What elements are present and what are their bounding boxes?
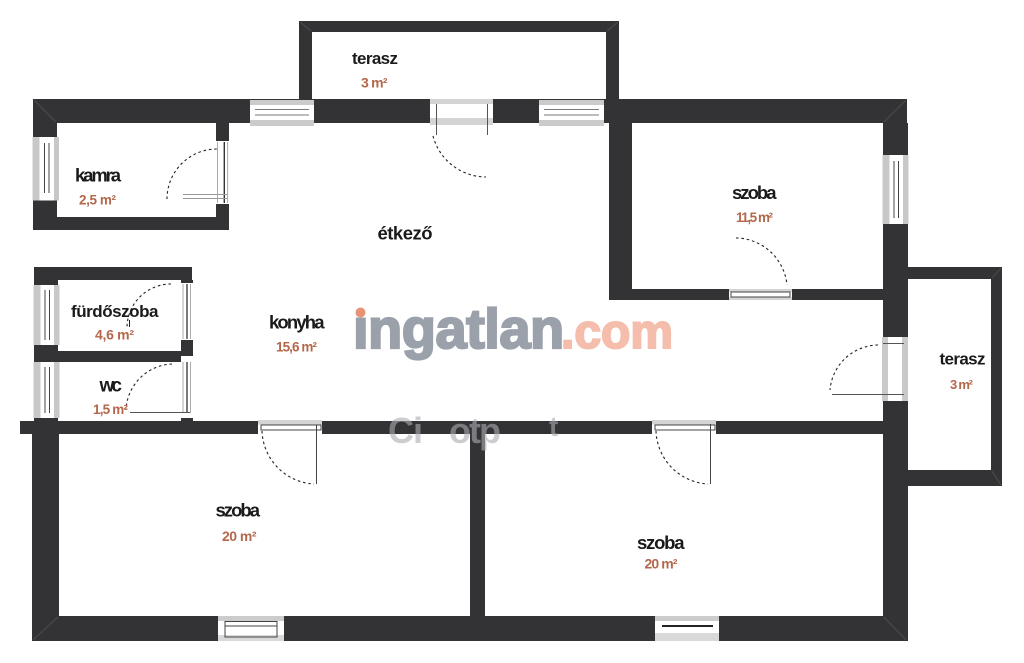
svg-text:t: t — [549, 411, 558, 442]
svg-text:étkező: étkező — [378, 223, 433, 244]
svg-text:3 m²: 3 m² — [950, 377, 974, 392]
svg-text:szoba: szoba — [732, 182, 777, 203]
svg-text:2,5 m²: 2,5 m² — [79, 193, 117, 208]
svg-text:15,6 m²: 15,6 m² — [276, 340, 318, 355]
svg-text:wc: wc — [99, 376, 123, 397]
svg-text:1,5 m²: 1,5 m² — [93, 402, 129, 417]
svg-text:11,5 m²: 11,5 m² — [736, 210, 774, 225]
svg-text:20 m²: 20 m² — [222, 528, 257, 544]
svg-text:.com: .com — [561, 306, 673, 359]
svg-text:20 m²: 20 m² — [645, 556, 678, 572]
svg-text:szoba: szoba — [216, 500, 261, 521]
svg-text:ıngatlan: ıngatlan — [353, 297, 564, 360]
svg-text:kamra: kamra — [75, 165, 122, 186]
svg-text:szoba: szoba — [637, 532, 685, 553]
svg-text:4,6 m²: 4,6 m² — [95, 327, 134, 343]
svg-text:3 m²: 3 m² — [361, 75, 388, 91]
svg-text:konyha: konyha — [269, 312, 325, 333]
svg-text:terasz: terasz — [940, 350, 986, 369]
svg-text:terasz: terasz — [352, 49, 398, 68]
svg-text:otp: otp — [449, 410, 500, 451]
svg-text:fürdőszoba: fürdőszoba — [71, 302, 159, 321]
svg-text:Ci: Ci — [388, 410, 422, 451]
